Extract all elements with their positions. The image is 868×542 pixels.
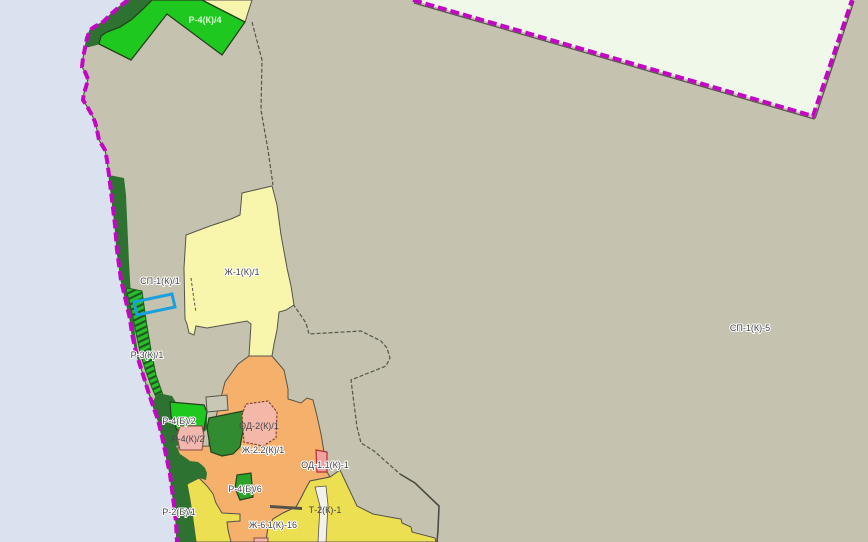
svg-text:Р-4(К)/4: Р-4(К)/4 xyxy=(189,15,222,25)
svg-text:СП-1(К)/1: СП-1(К)/1 xyxy=(140,276,180,286)
svg-text:Ж-2.2(К)/1: Ж-2.2(К)/1 xyxy=(242,445,285,455)
svg-text:Ж-6.1(К)-16: Ж-6.1(К)-16 xyxy=(249,520,297,530)
svg-text:Т-2(К)-1: Т-2(К)-1 xyxy=(309,505,342,515)
svg-text:Р-3(К)/1: Р-3(К)/1 xyxy=(131,350,164,360)
svg-text:ОД-2(К)/1: ОД-2(К)/1 xyxy=(239,421,279,431)
svg-text:Р-4(К)/2: Р-4(К)/2 xyxy=(172,434,205,444)
svg-text:СП-1(К)-5: СП-1(К)-5 xyxy=(730,323,770,333)
svg-text:Р-2(Б)/1: Р-2(Б)/1 xyxy=(162,507,195,517)
svg-text:Р-4(Б)/2: Р-4(Б)/2 xyxy=(162,416,195,426)
svg-text:Ж-1(К)/1: Ж-1(К)/1 xyxy=(224,267,259,277)
svg-text:ОД-1.1(К)-1: ОД-1.1(К)-1 xyxy=(301,460,349,470)
svg-text:Р-4(Б)/6: Р-4(Б)/6 xyxy=(228,484,261,494)
